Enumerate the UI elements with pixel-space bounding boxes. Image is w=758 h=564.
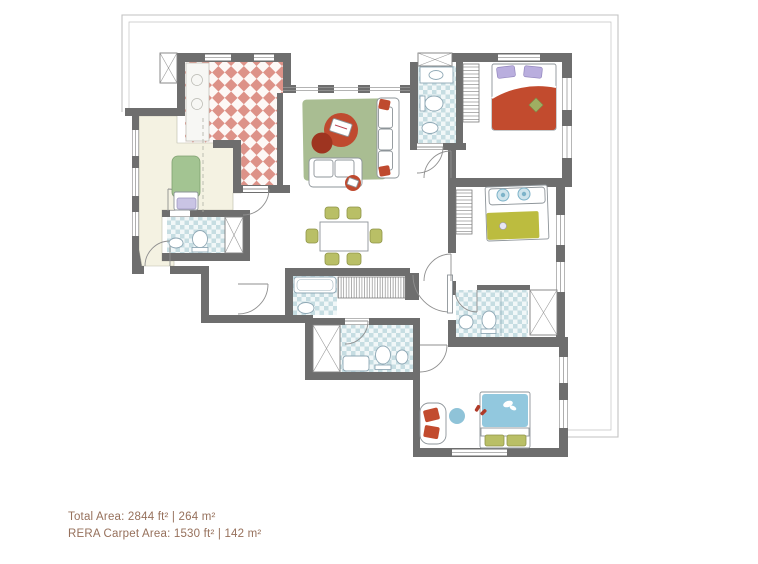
floor-plan-drawing [0,0,758,564]
sofa-main [377,98,399,178]
master-bedroom-door [420,345,447,372]
dining-table [320,222,368,251]
master-pouf [449,408,465,424]
total-area-text: Total Area: 2844 ft² | 264 m² [68,509,261,526]
kitchen-counter [186,63,209,141]
wardrobe-bedroom-2 [456,190,472,234]
wardrobe-bedroom-1 [463,64,479,122]
rera-carpet-area-text: RERA Carpet Area: 1530 ft² | 142 m² [68,526,261,543]
side-table [312,133,333,154]
floor-plan-page: Total Area: 2844 ft² | 264 m² RERA Carpe… [0,0,758,564]
duct-top-left [160,53,177,83]
bed-bedroom-2 [485,185,549,241]
maid-bed [172,156,200,210]
living-room-furniture [302,98,399,191]
duct-top-center [418,53,452,66]
bed-master [480,392,530,448]
wardrobe-lower-left [313,325,340,372]
bed-bedroom-1 [492,64,556,130]
closet-corridor [338,277,405,298]
vestibule-door [238,284,268,314]
dining-set [306,207,382,265]
area-summary: Total Area: 2844 ft² | 264 m² RERA Carpe… [68,509,261,543]
wardrobe-right [530,290,557,335]
bedroom-2-door [424,254,451,281]
shaft-maid-bath [225,217,243,253]
master-armchair [420,403,446,444]
bathroom-1-door [417,147,443,173]
bedroom-1-door [424,151,451,178]
